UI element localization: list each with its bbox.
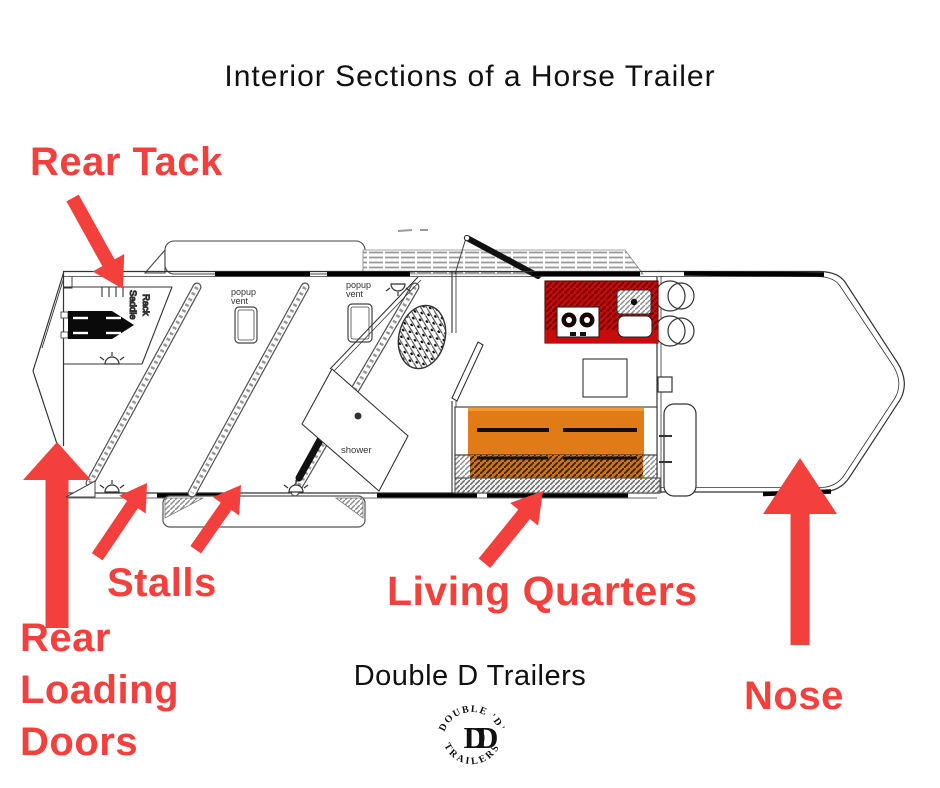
- label-rear-loading-doors-line1: Rear: [20, 612, 179, 664]
- dinette-table: [583, 359, 627, 397]
- rear-door-open: [33, 371, 57, 444]
- rear-door-open: [42, 279, 64, 348]
- nose-section: [655, 272, 904, 497]
- stove-knob: [580, 332, 586, 336]
- horse-trailer-diagram: Interior Sections of a Horse Trailer: [0, 0, 940, 788]
- saddle-rack-label-line2: Rack: [140, 294, 151, 316]
- label-rear-tack: Rear Tack: [30, 142, 223, 182]
- lq-door-leaf: [452, 342, 483, 401]
- roof-dash-mark: [398, 230, 412, 231]
- light-icon: [100, 352, 124, 364]
- saddle-rack-mount: [61, 312, 68, 318]
- nose-closet-door: [664, 404, 696, 496]
- popup-vent-label: vent: [346, 289, 364, 299]
- rear-corner-flap: [66, 481, 95, 497]
- roof-awning-band: [363, 250, 643, 274]
- tank: [655, 316, 685, 346]
- saddle-rack-label-line1: Saddle: [127, 290, 138, 320]
- label-stalls: Stalls: [107, 563, 217, 603]
- label-living-quarters: Living Quarters: [387, 571, 698, 612]
- popup-vent-label: vent: [231, 296, 249, 306]
- roof-features: [145, 230, 643, 276]
- shower-label: shower: [341, 445, 372, 456]
- nose-top-window: [684, 274, 824, 275]
- saddle-rack-saddles: [68, 311, 134, 339]
- sink-faucet: [631, 299, 637, 305]
- shower-drain: [355, 413, 362, 420]
- rear-wall-notch: [63, 277, 72, 288]
- wall-box: [658, 377, 672, 392]
- roof-hatch-hinge: [464, 235, 469, 240]
- lq-floor-slideout: [455, 478, 660, 493]
- brand-logo: DOUBLE 'D' DD TRAILERS: [437, 704, 507, 768]
- roof-left-wedge: [145, 250, 165, 273]
- sink-basin: [618, 316, 652, 337]
- brand-name: Double D Trailers: [0, 660, 940, 693]
- light-icon: [100, 480, 124, 492]
- rear-door-open: [33, 273, 64, 371]
- roof-escape-pod: [165, 241, 365, 274]
- label-rear-loading-doors-line3: Doors: [20, 716, 179, 768]
- saddle-rack-mount: [61, 332, 68, 338]
- stove-knob: [570, 332, 576, 336]
- tank: [655, 281, 685, 311]
- arrow-rear-loading-doors: [23, 442, 91, 628]
- arrow-rear-tack: [57, 189, 139, 297]
- rear-tack-room: Saddle Rack: [61, 287, 172, 364]
